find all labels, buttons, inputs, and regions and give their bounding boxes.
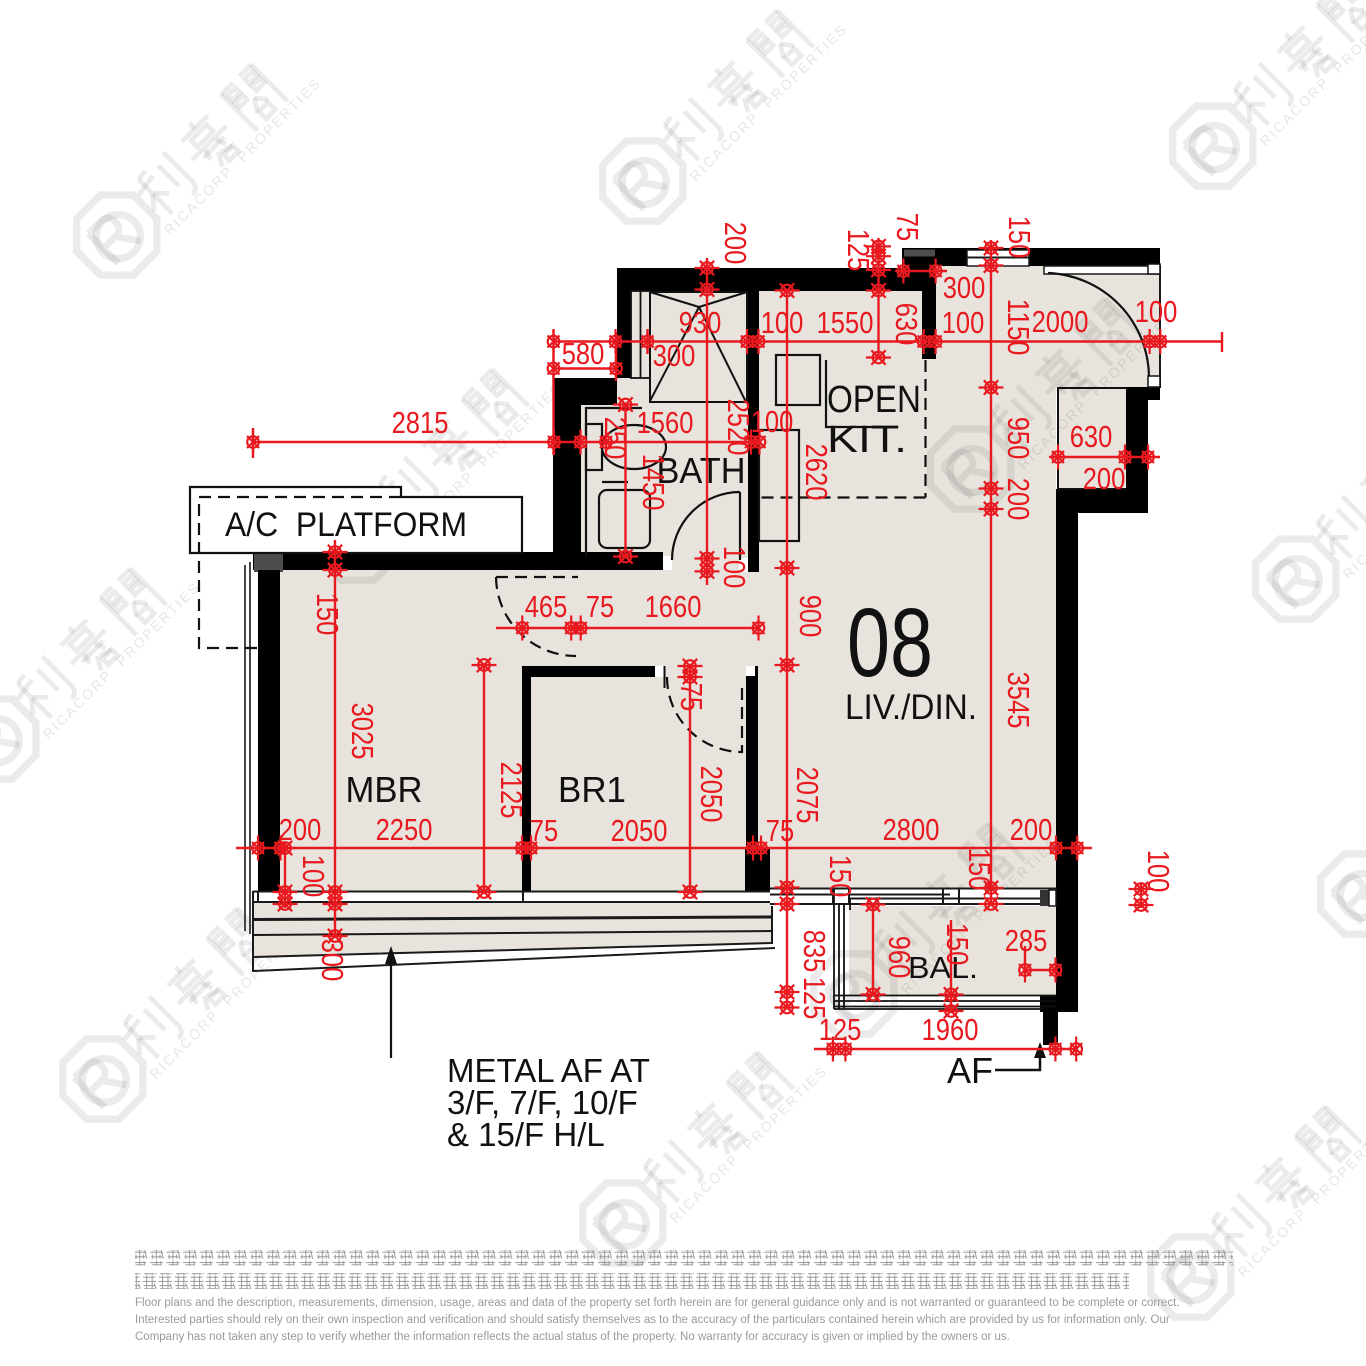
svg-text:AF: AF xyxy=(947,1050,993,1091)
svg-text:150: 150 xyxy=(940,923,975,966)
svg-text:200: 200 xyxy=(1010,812,1053,847)
svg-text:08: 08 xyxy=(847,588,933,697)
svg-text:200: 200 xyxy=(1083,461,1126,496)
svg-text:2050: 2050 xyxy=(611,813,668,848)
svg-text:2125: 2125 xyxy=(494,762,529,819)
svg-text:Interested parties should rely: Interested parties should rely on their … xyxy=(135,1314,1170,1326)
svg-text:OPEN: OPEN xyxy=(827,379,921,421)
svg-text:100: 100 xyxy=(717,546,752,589)
svg-text:100: 100 xyxy=(761,305,804,340)
svg-text:950: 950 xyxy=(1001,417,1036,460)
svg-text:LIV./DIN.: LIV./DIN. xyxy=(845,688,977,727)
svg-text:1550: 1550 xyxy=(817,305,874,340)
svg-text:285: 285 xyxy=(1005,923,1048,958)
svg-text:1450: 1450 xyxy=(636,454,671,511)
svg-text:2815: 2815 xyxy=(392,405,449,440)
svg-text:75: 75 xyxy=(586,589,614,624)
svg-text:75: 75 xyxy=(890,213,925,241)
svg-text:75: 75 xyxy=(674,683,709,711)
svg-text:2250: 2250 xyxy=(376,812,433,847)
svg-text:835: 835 xyxy=(797,930,832,973)
svg-text:Company has not taken any step: Company has not taken any step to verify… xyxy=(135,1331,1010,1343)
svg-text:1960: 1960 xyxy=(922,1012,979,1047)
svg-text:200: 200 xyxy=(718,222,753,265)
svg-text:BR1: BR1 xyxy=(558,769,626,810)
svg-text:100: 100 xyxy=(751,404,794,439)
svg-text:1660: 1660 xyxy=(645,589,702,624)
svg-text:100: 100 xyxy=(296,855,331,898)
svg-text:930: 930 xyxy=(679,305,722,340)
svg-text:960: 960 xyxy=(882,936,917,979)
svg-text:3545: 3545 xyxy=(1001,672,1036,729)
svg-text:125: 125 xyxy=(841,229,876,272)
svg-text:150: 150 xyxy=(823,855,858,898)
svg-text:100: 100 xyxy=(1135,294,1178,329)
svg-text:630: 630 xyxy=(1070,419,1113,454)
svg-text:3025: 3025 xyxy=(345,703,380,760)
svg-text:Floor plans and the descriptio: Floor plans and the description, measure… xyxy=(135,1297,1180,1309)
svg-text:& 15/F H/L: & 15/F H/L xyxy=(447,1116,605,1153)
svg-text:125: 125 xyxy=(797,977,832,1020)
svg-text:300: 300 xyxy=(315,939,350,982)
svg-text:KIT.: KIT. xyxy=(827,419,907,461)
svg-text:1560: 1560 xyxy=(637,405,694,440)
svg-text:2050: 2050 xyxy=(694,766,729,823)
svg-text:75: 75 xyxy=(766,813,794,848)
svg-text:630: 630 xyxy=(889,303,924,346)
svg-text:200: 200 xyxy=(279,812,322,847)
svg-text:580: 580 xyxy=(562,336,605,371)
svg-text:2800: 2800 xyxy=(883,812,940,847)
svg-text:200: 200 xyxy=(1001,478,1036,521)
svg-text:2520: 2520 xyxy=(721,399,756,456)
svg-text:2075: 2075 xyxy=(790,767,825,824)
svg-text:150: 150 xyxy=(1002,216,1037,259)
svg-text:900: 900 xyxy=(793,595,828,638)
svg-text:150: 150 xyxy=(310,593,345,636)
svg-text:2620: 2620 xyxy=(799,444,834,501)
svg-text:1150: 1150 xyxy=(1001,299,1036,356)
svg-text:2000: 2000 xyxy=(1032,304,1089,339)
svg-text:300: 300 xyxy=(943,270,986,305)
svg-text:150: 150 xyxy=(962,848,997,891)
svg-text:250: 250 xyxy=(598,417,633,460)
svg-text:100: 100 xyxy=(1141,850,1176,893)
svg-text:A/C PLATFORM: A/C PLATFORM xyxy=(225,506,467,544)
svg-text:100: 100 xyxy=(942,305,985,340)
svg-text:465: 465 xyxy=(525,589,568,624)
svg-text:300: 300 xyxy=(653,338,696,373)
svg-text:MBR: MBR xyxy=(346,769,423,810)
svg-text:75: 75 xyxy=(530,813,558,848)
